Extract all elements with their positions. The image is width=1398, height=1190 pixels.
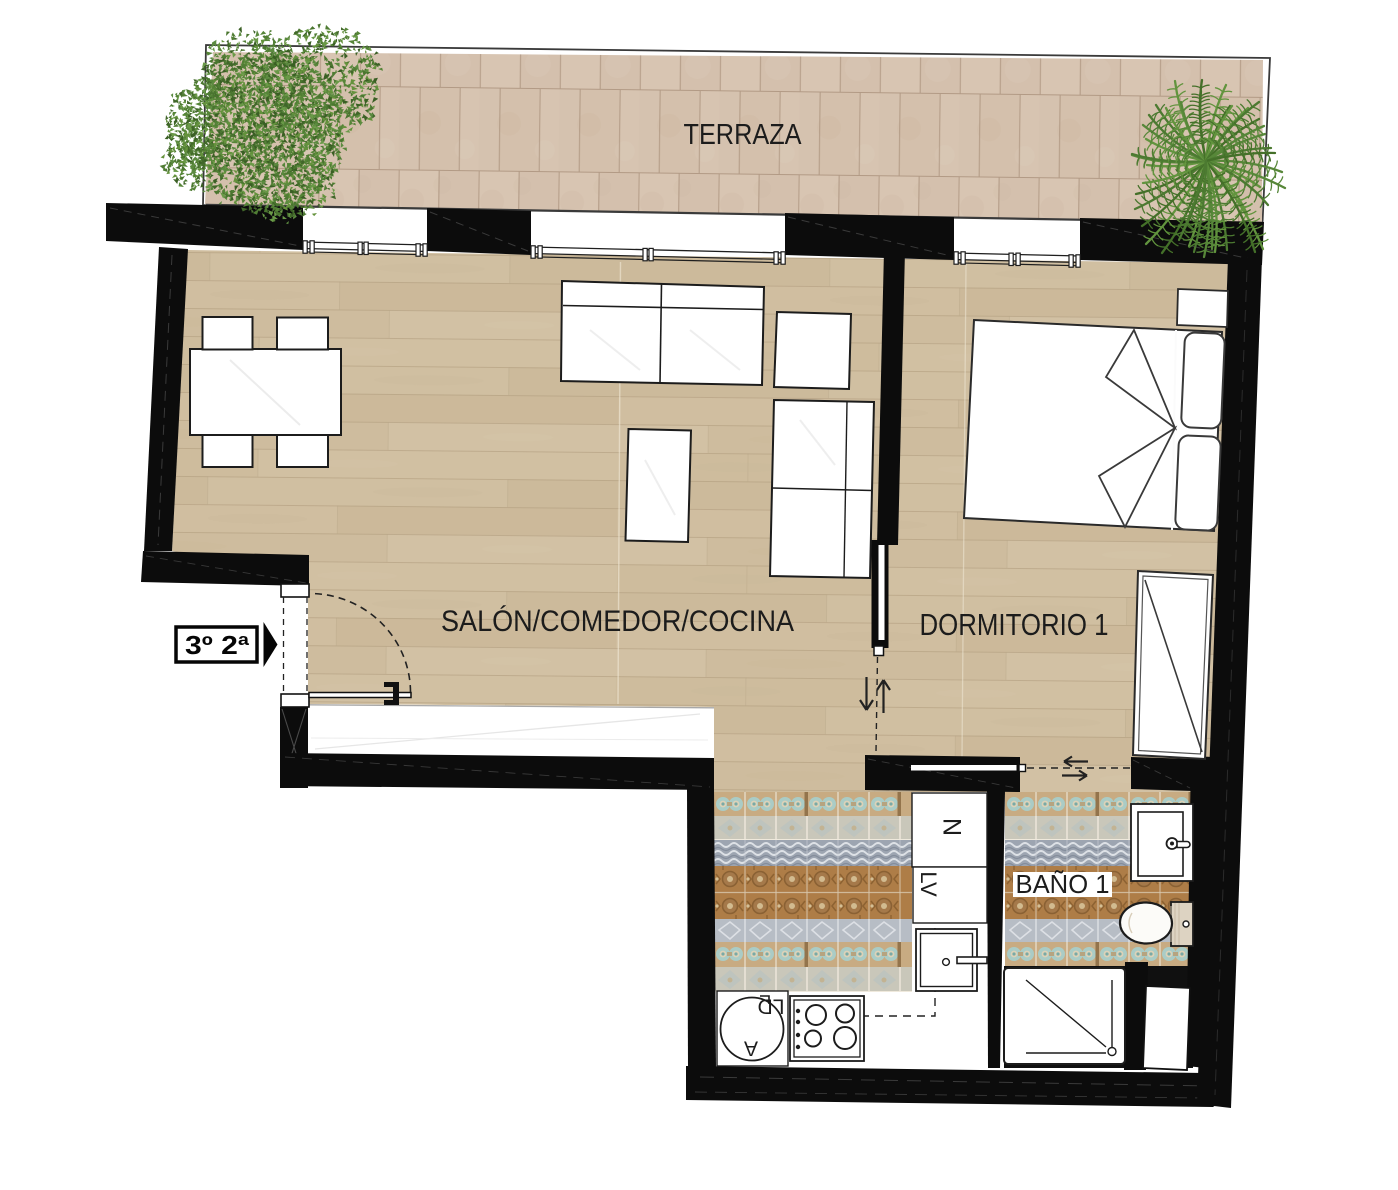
svg-text:TERRAZA: TERRAZA — [684, 119, 803, 151]
svg-text:N: N — [937, 818, 965, 836]
svg-text:BAÑO 1: BAÑO 1 — [1016, 869, 1110, 899]
svg-text:A: A — [744, 1036, 758, 1059]
svg-text:3º 2ª: 3º 2ª — [185, 630, 249, 660]
svg-text:LV: LV — [916, 871, 941, 897]
svg-text:LD: LD — [758, 994, 785, 1017]
svg-text:DORMITORIO 1: DORMITORIO 1 — [920, 607, 1109, 642]
svg-text:SALÓN/COMEDOR/COCINA: SALÓN/COMEDOR/COCINA — [441, 605, 794, 638]
